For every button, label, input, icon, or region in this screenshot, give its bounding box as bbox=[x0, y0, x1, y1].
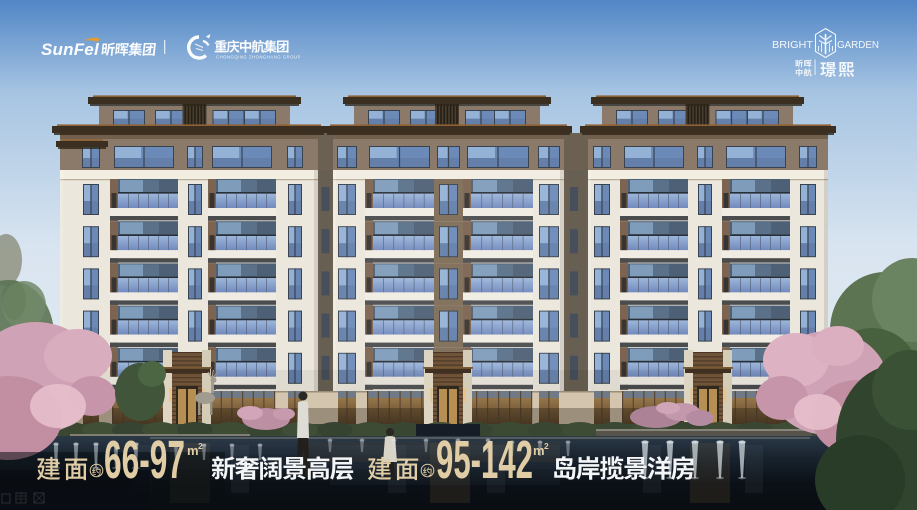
svg-text:2: 2 bbox=[544, 441, 549, 451]
svg-text:66-97: 66-97 bbox=[104, 430, 185, 490]
svg-text:m: m bbox=[533, 443, 545, 458]
svg-text:m: m bbox=[187, 443, 199, 458]
svg-text:95-142: 95-142 bbox=[436, 430, 533, 490]
svg-text:SunFel: SunFel bbox=[41, 40, 100, 59]
svg-text:BRIGHT: BRIGHT bbox=[772, 40, 813, 51]
svg-text:CHONGQING ZHONGHANG GROUP: CHONGQING ZHONGHANG GROUP bbox=[216, 55, 301, 60]
svg-text:GARDEN: GARDEN bbox=[837, 40, 879, 51]
svg-text:2: 2 bbox=[198, 441, 203, 451]
